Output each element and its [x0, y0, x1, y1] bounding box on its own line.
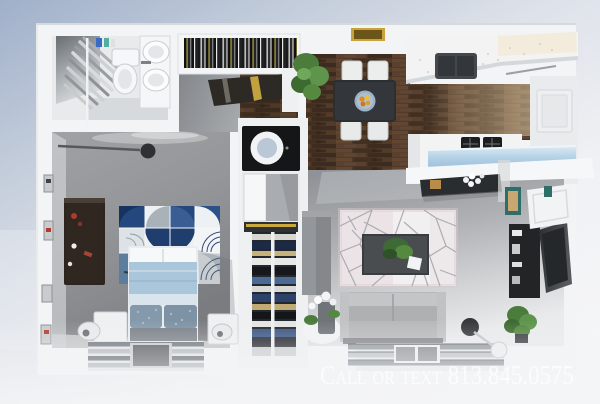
svg-text:Call or text 813.845.0575: Call or text 813.845.0575: [320, 360, 574, 390]
